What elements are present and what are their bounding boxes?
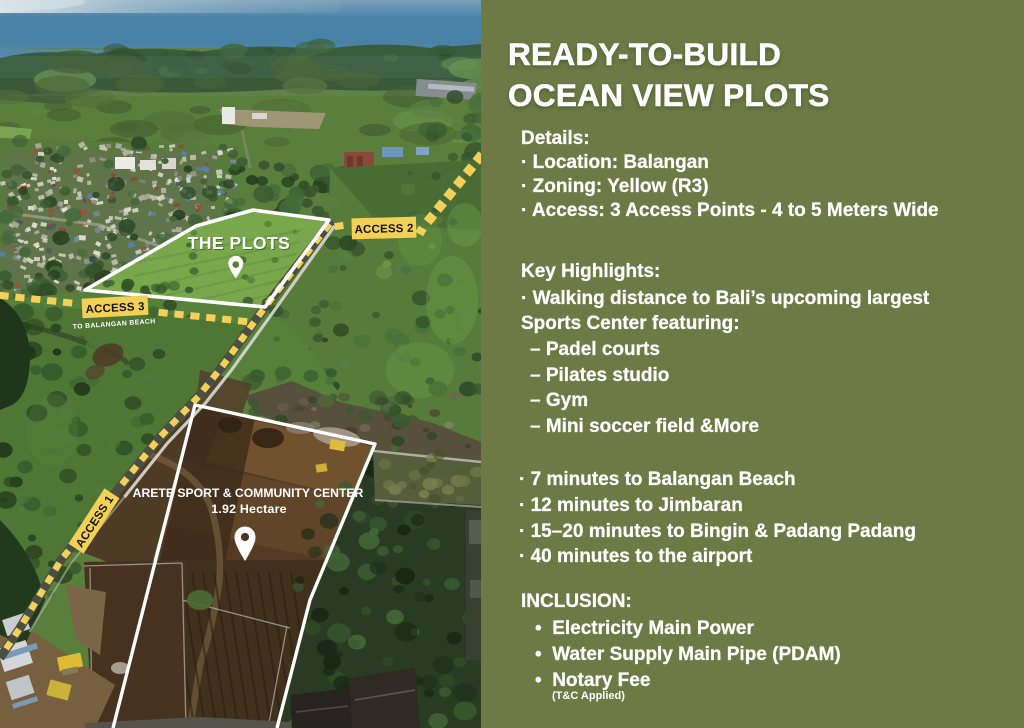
svg-text:ACCESS 2: ACCESS 2 <box>354 223 413 237</box>
svg-text:THE PLOTS: THE PLOTS <box>188 233 291 253</box>
svg-text:1.92 Hectare: 1.92 Hectare <box>211 502 286 516</box>
svg-text:ARETE SPORT & COMMUNITY CENTER: ARETE SPORT & COMMUNITY CENTER <box>133 486 364 500</box>
